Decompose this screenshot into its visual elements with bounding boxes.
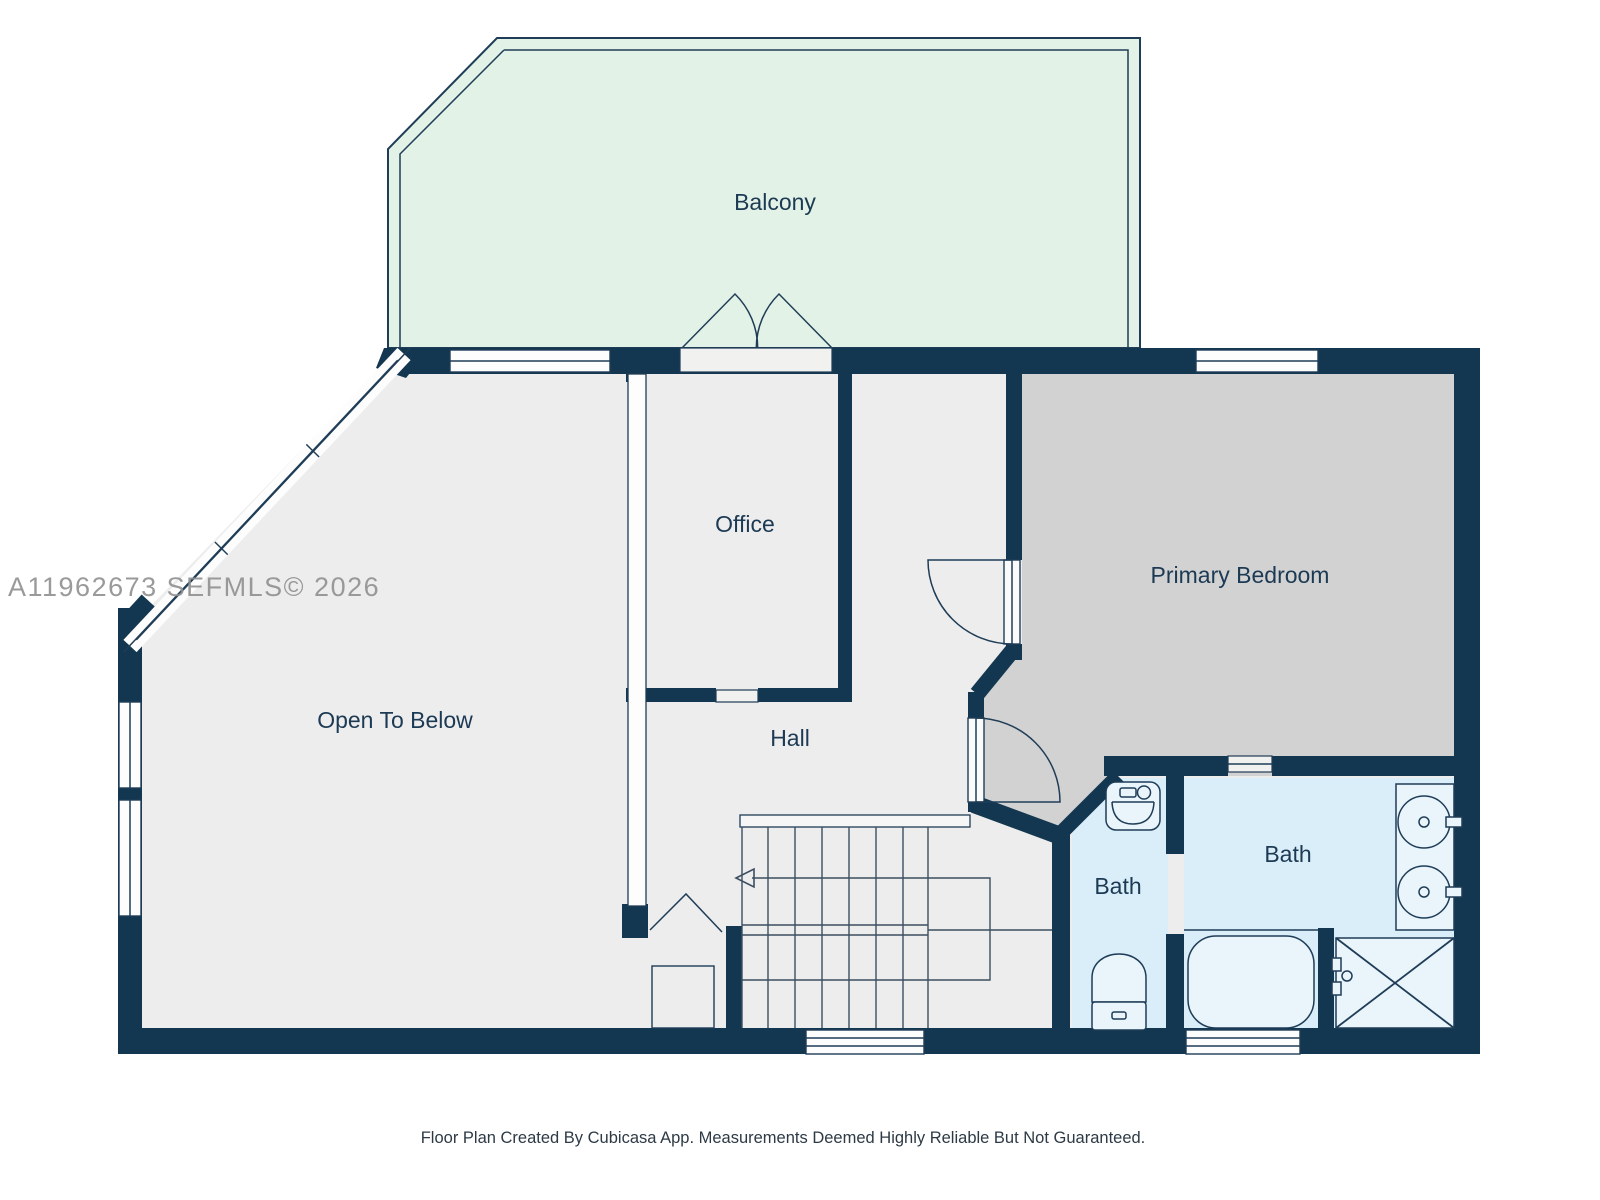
railing [628,374,646,906]
floor-plan-page: Balcony Office Open To Below Hall Primar… [0,0,1600,1200]
window-left-lower [119,800,141,916]
window-bottom-bath [1186,1030,1300,1054]
bathtub-icon [1184,930,1318,1028]
balcony-label: Balcony [734,189,816,215]
shower-icon [1332,938,1454,1028]
office-label: Office [715,511,775,537]
closet-box [652,966,714,1028]
window-left-upper [119,702,141,788]
sink-icon [1106,782,1160,830]
door-bedroom-bath [1228,756,1272,772]
footer-disclaimer: Floor Plan Created By Cubicasa App. Meas… [421,1129,1146,1147]
office-sliding-door [716,690,758,702]
primary-bedroom-label: Primary Bedroom [1151,562,1330,588]
window-top-left [450,350,610,372]
vanity-sinks-icon [1396,784,1462,930]
window-bottom-stairs [806,1030,924,1054]
bath-large-label: Bath [1264,841,1311,867]
open-to-below-label: Open To Below [317,707,473,733]
bath-small-label: Bath [1094,873,1141,899]
window-bedroom-top [1196,350,1318,372]
toilet-icon [1092,954,1146,1030]
hall-label: Hall [770,725,810,751]
mls-watermark: A11962673 SEFMLS© 2026 [8,572,380,602]
floor-plan-canvas: Balcony Office Open To Below Hall Primar… [0,0,1600,1200]
